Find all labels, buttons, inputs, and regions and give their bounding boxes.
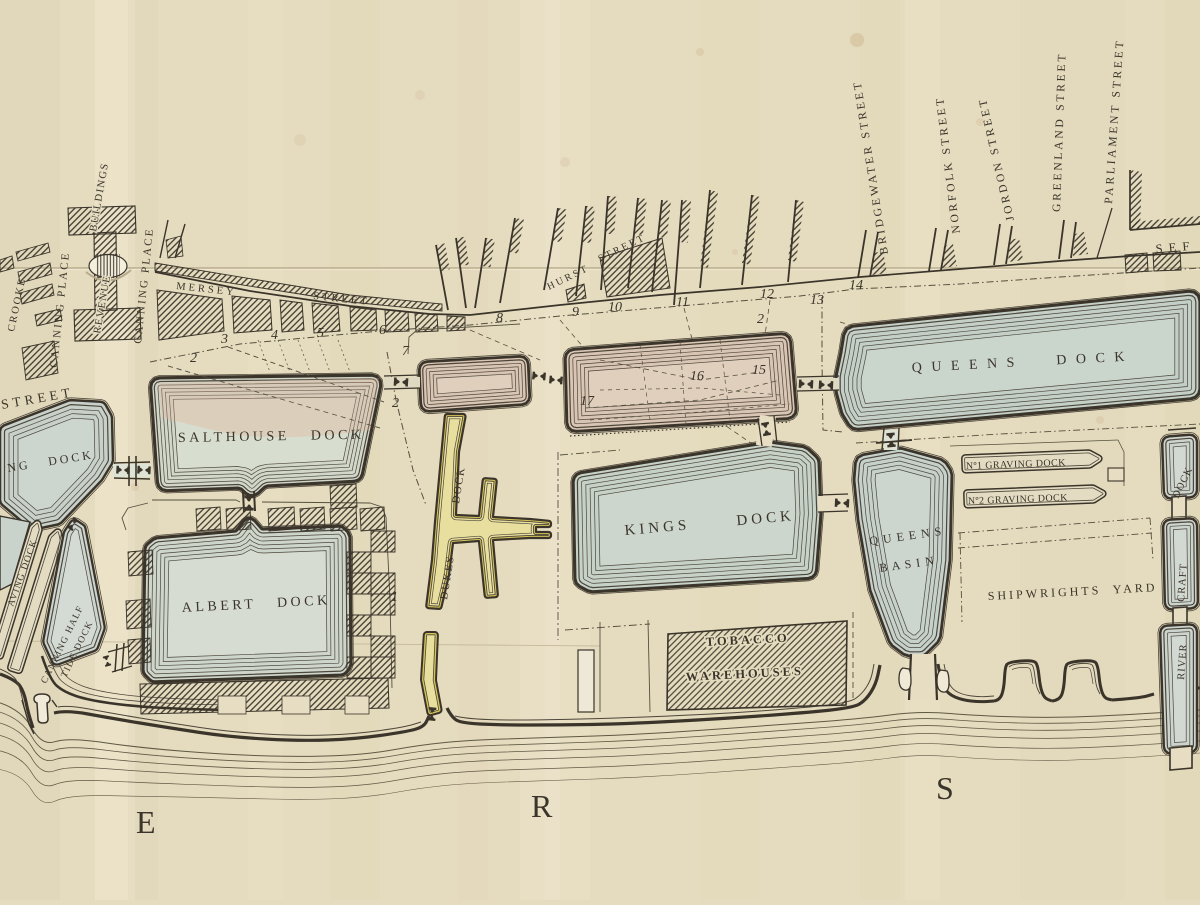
- svg-text:8: 8: [496, 311, 503, 326]
- svg-text:4: 4: [271, 328, 278, 343]
- svg-text:2: 2: [190, 351, 197, 366]
- svg-text:9: 9: [572, 305, 579, 320]
- svg-text:15: 15: [752, 363, 766, 378]
- svg-text:E: E: [136, 804, 156, 840]
- svg-text:2: 2: [392, 396, 399, 411]
- svg-text:R: R: [531, 788, 553, 824]
- svg-text:2: 2: [757, 312, 764, 327]
- svg-text:5: 5: [317, 326, 324, 341]
- svg-text:16: 16: [690, 369, 704, 384]
- svg-text:12: 12: [760, 287, 774, 302]
- svg-text:3: 3: [220, 332, 228, 347]
- svg-text:6: 6: [379, 323, 386, 338]
- svg-text:14: 14: [849, 278, 863, 293]
- svg-text:13: 13: [810, 293, 824, 308]
- svg-text:11: 11: [676, 295, 689, 310]
- svg-text:17: 17: [580, 394, 595, 409]
- svg-text:S: S: [936, 770, 954, 806]
- svg-text:10: 10: [608, 300, 622, 315]
